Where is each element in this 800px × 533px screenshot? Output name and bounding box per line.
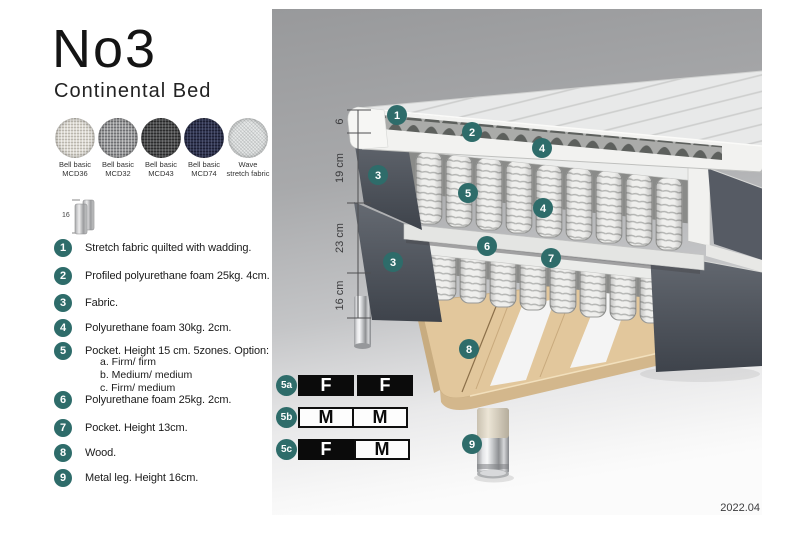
version-label: 2022.04 <box>700 502 760 514</box>
ruler-label-16cm: 16 cm <box>334 281 346 311</box>
svg-text:1: 1 <box>394 110 400 122</box>
callout-2: 2 <box>462 122 482 142</box>
callout-6: 6 <box>477 236 497 256</box>
svg-text:4: 4 <box>540 203 547 215</box>
callout-7: 7 <box>541 248 561 268</box>
product-spec-page: No3 Continental Bed Bell basic MCD36 Bel… <box>0 0 800 533</box>
ruler-label-19cm: 19 cm <box>334 153 346 183</box>
callout-4-upper: 4 <box>532 138 552 158</box>
callout-4-lower: 4 <box>533 198 553 218</box>
svg-text:9: 9 <box>469 439 475 451</box>
callout-1: 1 <box>387 105 407 125</box>
back-leg <box>354 296 371 349</box>
svg-text:3: 3 <box>375 170 381 182</box>
svg-text:5: 5 <box>465 188 471 200</box>
ruler-label-6: 6 <box>334 118 346 124</box>
svg-text:4: 4 <box>539 143 546 155</box>
callout-3-upper: 3 <box>368 165 388 185</box>
firmness-cell: F <box>298 375 354 396</box>
svg-text:8: 8 <box>466 344 472 356</box>
firmness-cell: F <box>357 375 413 396</box>
svg-text:6: 6 <box>484 241 490 253</box>
firmness-cell: M <box>354 439 410 460</box>
callout-3-lower: 3 <box>383 252 403 272</box>
firmness-row-5a: 5a F F <box>276 375 413 396</box>
firmness-cell: M <box>298 407 354 428</box>
firmness-cell: F <box>298 439 354 460</box>
firmness-badge: 5a <box>276 375 297 396</box>
ruler-label-23cm: 23 cm <box>334 223 346 253</box>
firmness-badge: 5c <box>276 439 297 460</box>
firmness-cell: M <box>352 407 408 428</box>
svg-text:7: 7 <box>548 253 554 265</box>
top-mattress-rounded-corner <box>348 107 388 149</box>
firmness-row-5b: 5b M M <box>276 407 408 428</box>
middle-cut-post <box>688 163 710 246</box>
svg-text:3: 3 <box>390 257 396 269</box>
firmness-row-5c: 5c F M <box>276 439 410 460</box>
svg-text:2: 2 <box>469 127 475 139</box>
callout-5: 5 <box>458 183 478 203</box>
firmness-badge: 5b <box>276 407 297 428</box>
callout-9: 9 <box>462 434 482 454</box>
callout-8: 8 <box>459 339 479 359</box>
